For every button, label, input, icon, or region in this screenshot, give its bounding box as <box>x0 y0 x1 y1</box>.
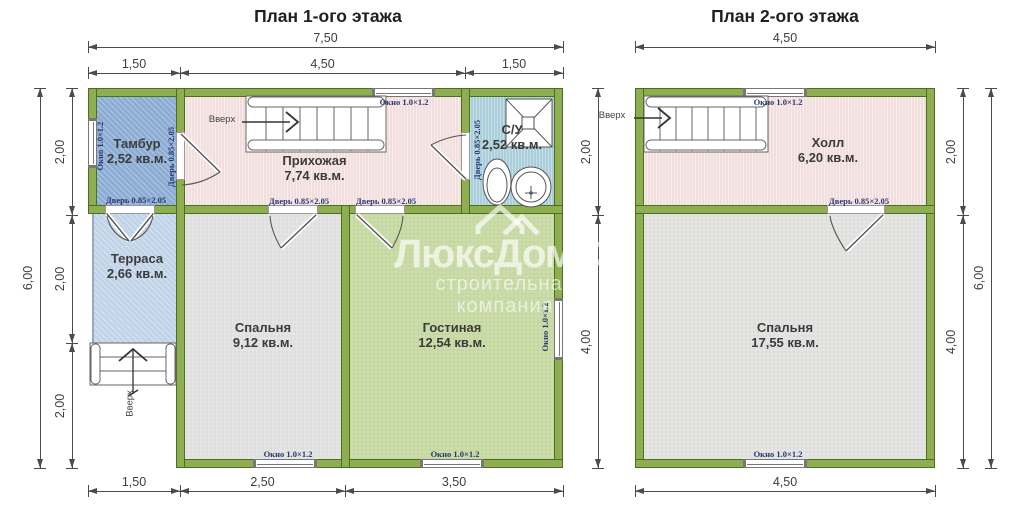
dim-tick <box>935 41 936 53</box>
f1-room-label-tambour: Тамбур2,52 кв.м. <box>97 136 177 166</box>
f1-door-label-living: Дверь 0.85×2.05 <box>349 196 423 206</box>
dim-value: 4,00 <box>944 329 958 353</box>
dim-value: 7,50 <box>88 31 563 45</box>
f1-dim-top-seg3: 1,50 <box>465 73 563 74</box>
dim-tick <box>563 41 564 53</box>
f1-doorway-tambour-terrace <box>105 205 155 214</box>
f1-room-label-hallway: Прихожая7,74 кв.м. <box>242 153 387 183</box>
f1-porch-up-label: Вверх <box>125 384 136 424</box>
dim-value: 4,50 <box>180 57 465 71</box>
dim-tick <box>635 485 636 497</box>
f1-window-label-hallway: Окно 1.0×1.2 <box>367 97 441 107</box>
f1-dim-bottom-seg1: 1,50 <box>88 491 180 492</box>
f1-doorway-living <box>355 205 405 214</box>
room-area: 9,12 кв.м. <box>185 335 341 350</box>
f2-room-label-bedroom: Спальня17,55 кв.м. <box>644 320 926 350</box>
f1-dim-right-seg1: 2,00 <box>598 88 599 215</box>
f1-door-label-bathroom: Дверь 0.85×2.05 <box>472 113 482 187</box>
f1-window-label-living-right: Окно 1.0×1.2 <box>540 290 550 364</box>
room-area: 2,52 кв.м. <box>470 137 554 152</box>
dim-value: 4,50 <box>635 31 935 45</box>
dim-tick <box>635 41 636 53</box>
f2-doorway-bedroom <box>827 205 885 214</box>
room-area: 17,55 кв.м. <box>644 335 926 350</box>
f2-dim-right-total: 6,00 <box>991 88 992 468</box>
floor2-title: План 2-ого этажа <box>620 6 950 27</box>
f1-dim-left-seg3: 2,00 <box>72 343 73 468</box>
dim-tick <box>88 67 89 79</box>
f1-dim-bottom-seg3: 3,50 <box>345 491 563 492</box>
f2-wall-right <box>926 88 935 468</box>
f2-dim-right-seg2: 4,00 <box>963 215 964 468</box>
dim-value: 4,00 <box>579 329 593 353</box>
dim-tick <box>34 468 46 469</box>
f2-stairs-up-label: Вверх <box>592 110 632 121</box>
f2-dim-right-seg1: 2,00 <box>963 88 964 215</box>
f1-room-label-bedroom: Спальня9,12 кв.м. <box>185 320 341 350</box>
f1-window-bedroom-icon <box>253 459 317 468</box>
f1-dim-bottom-seg2: 2,50 <box>180 491 345 492</box>
dim-tick <box>957 88 969 89</box>
dim-tick <box>563 485 564 497</box>
room-name: Тамбур <box>97 136 177 151</box>
dim-value: 3,50 <box>345 475 563 489</box>
dim-tick <box>985 88 997 89</box>
f2-dim-top-total: 4,50 <box>635 47 935 48</box>
dim-tick <box>563 67 564 79</box>
dim-value: 2,00 <box>579 139 593 163</box>
f1-wall-mid <box>88 205 563 214</box>
f1-room-label-living: Гостиная12,54 кв.м. <box>350 320 554 350</box>
dim-value: 2,00 <box>944 139 958 163</box>
f1-room-label-bathroom: С/У2,52 кв.м. <box>470 122 554 152</box>
dim-tick <box>957 468 969 469</box>
dim-value: 6,00 <box>21 266 35 290</box>
f1-window-living-right-icon <box>554 298 563 360</box>
f1-door-label-terrace: Дверь 0.85×2.05 <box>99 195 173 205</box>
dim-tick <box>66 215 78 216</box>
room-area: 2,52 кв.м. <box>97 151 177 166</box>
room-name: Холл <box>740 135 916 150</box>
dim-value: 6,00 <box>972 266 986 290</box>
f2-window-bedroom-icon <box>743 459 807 468</box>
f1-door-label-bedroom: Дверь 0.85×2.05 <box>262 196 336 206</box>
dim-tick <box>88 485 89 497</box>
f2-window-label-bedroom: Окно 1.0×1.2 <box>741 449 815 459</box>
dim-value: 2,00 <box>53 139 67 163</box>
room-area: 7,74 кв.м. <box>242 168 387 183</box>
dim-value: 2,50 <box>180 475 345 489</box>
room-area: 2,66 кв.м. <box>97 266 177 281</box>
f1-room-label-terrace: Терраса2,66 кв.м. <box>97 251 177 281</box>
f2-window-label-hall: Окно 1.0×1.2 <box>741 97 815 107</box>
f1-stairs-up-label: Вверх <box>202 114 242 125</box>
dim-tick <box>66 343 78 344</box>
f1-window-label-tambour: Окно 1.0×1.2 <box>95 109 105 183</box>
f1-wall-top <box>88 88 563 97</box>
room-area: 12,54 кв.м. <box>350 335 554 350</box>
dim-tick <box>592 215 604 216</box>
dim-value: 2,00 <box>53 393 67 417</box>
f1-dim-left-seg1: 2,00 <box>72 88 73 215</box>
dim-value: 4,50 <box>635 475 935 489</box>
f1-wall-right <box>554 88 563 468</box>
f1-dim-top-seg1: 1,50 <box>88 73 180 74</box>
f1-window-hallway-icon <box>372 88 435 97</box>
f1-door-label-tambour-hallway: Дверь 0.85×2.05 <box>166 120 176 194</box>
f1-dim-left-seg2: 2,00 <box>72 215 73 343</box>
room-name: С/У <box>470 122 554 137</box>
room-name: Гостиная <box>350 320 554 335</box>
dim-tick <box>957 215 969 216</box>
dim-value: 1,50 <box>88 475 180 489</box>
f1-dim-top-total: 7,50 <box>88 47 563 48</box>
dim-tick <box>592 468 604 469</box>
f2-wall-mid <box>635 205 935 214</box>
dim-value: 1,50 <box>465 57 563 71</box>
dim-value: 2,00 <box>53 267 67 291</box>
room-area: 6,20 кв.м. <box>740 150 916 165</box>
f1-window-label-bedroom: Окно 1.0×1.2 <box>251 449 325 459</box>
f2-door-label-bedroom: Дверь 0.85×2.05 <box>822 196 896 206</box>
f2-window-hall-icon <box>743 88 807 97</box>
f1-dim-left-total: 6,00 <box>40 88 41 468</box>
f1-dim-top-seg2: 4,50 <box>180 73 465 74</box>
f1-window-living-bottom-icon <box>420 459 484 468</box>
dim-value: 1,50 <box>88 57 180 71</box>
dim-tick <box>34 88 46 89</box>
dim-tick <box>345 485 346 497</box>
floor1-title: План 1-ого этажа <box>168 6 488 27</box>
f1-dim-right-seg2: 4,00 <box>598 215 599 468</box>
f1-doorway-bathroom <box>461 132 470 180</box>
dim-tick <box>935 485 936 497</box>
dim-tick <box>66 468 78 469</box>
room-name: Терраса <box>97 251 177 266</box>
room-name: Прихожая <box>242 153 387 168</box>
floor-plan-sheet: План 1-ого этажа План 2-ого этажа <box>0 0 1010 505</box>
dim-tick <box>592 88 604 89</box>
f1-doorway-bedroom <box>268 205 318 214</box>
f1-window-label-living-bottom: Окно 1.0×1.2 <box>418 449 492 459</box>
dim-tick <box>180 67 181 79</box>
room-name: Спальня <box>644 320 926 335</box>
room-name: Спальня <box>185 320 341 335</box>
dim-tick <box>985 468 997 469</box>
f2-room-label-hall: Холл6,20 кв.м. <box>740 135 916 165</box>
dim-tick <box>180 485 181 497</box>
f1-wall-bottom <box>176 459 563 468</box>
dim-tick <box>88 41 89 53</box>
dim-tick <box>66 88 78 89</box>
f2-wall-left <box>635 88 644 468</box>
f1-wall-bedroom-living <box>341 205 350 468</box>
dim-tick <box>465 67 466 79</box>
f2-dim-bottom-total: 4,50 <box>635 491 935 492</box>
f1-doorway-tambour-hallway <box>176 132 185 180</box>
